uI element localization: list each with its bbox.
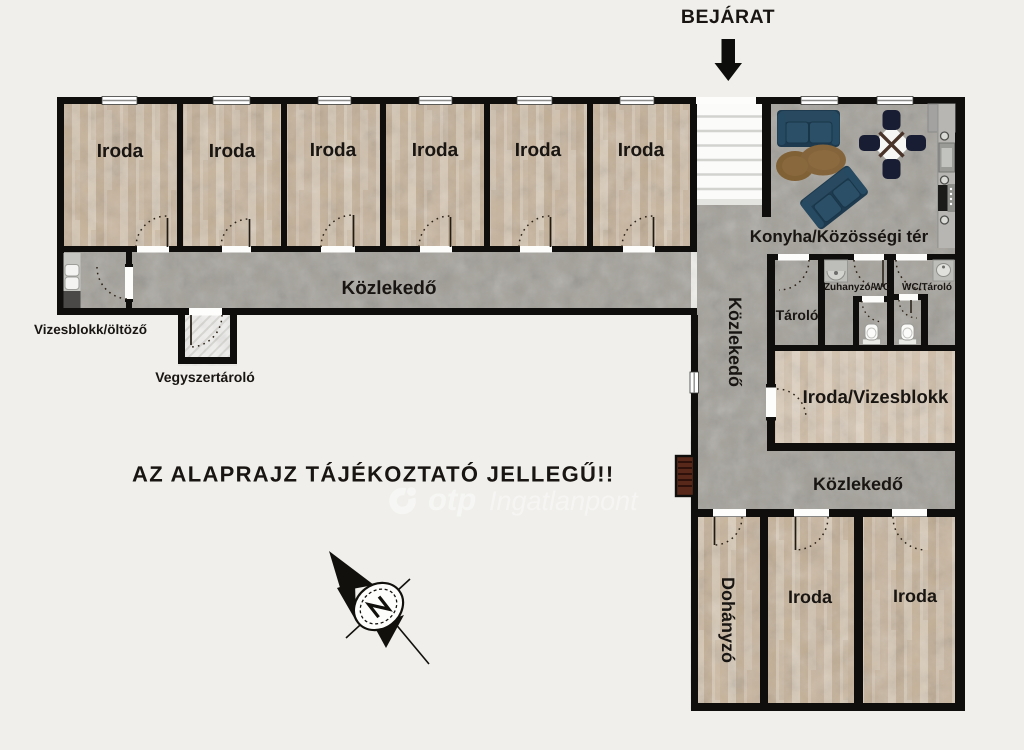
svg-text:WC/Tároló: WC/Tároló <box>902 282 952 293</box>
svg-text:Iroda: Iroda <box>618 140 665 161</box>
svg-text:Dohányzó: Dohányzó <box>718 577 738 663</box>
svg-text:Iroda/Vizesblokk: Iroda/Vizesblokk <box>803 386 949 407</box>
svg-text:Konyha/Közösségi tér: Konyha/Közösségi tér <box>750 227 929 246</box>
svg-text:Ingatlanpont: Ingatlanpont <box>489 486 639 516</box>
svg-text:Közlekedő: Közlekedő <box>341 278 436 299</box>
svg-text:Iroda: Iroda <box>412 140 459 161</box>
svg-text:Iroda: Iroda <box>893 586 938 606</box>
svg-text:Iroda: Iroda <box>788 587 833 607</box>
svg-text:Tároló: Tároló <box>776 307 819 323</box>
svg-text:Vegyszertároló: Vegyszertároló <box>155 369 255 385</box>
svg-text:Iroda: Iroda <box>310 140 357 161</box>
svg-text:Közlekedő: Közlekedő <box>725 297 745 387</box>
svg-text:Zuhanyzó/WC: Zuhanyzó/WC <box>824 282 890 293</box>
svg-text:AZ ALAPRAJZ TÁJÉKOZTATÓ JELLEG: AZ ALAPRAJZ TÁJÉKOZTATÓ JELLEGŰ!! <box>132 462 614 487</box>
svg-text:Iroda: Iroda <box>515 140 562 161</box>
svg-text:otp: otp <box>428 482 476 517</box>
svg-text:Közlekedő: Közlekedő <box>813 474 903 494</box>
svg-text:BEJÁRAT: BEJÁRAT <box>681 5 775 28</box>
svg-text:Iroda: Iroda <box>97 141 144 162</box>
svg-text:Iroda: Iroda <box>209 141 256 162</box>
svg-text:Vizesblokk/öltöző: Vizesblokk/öltöző <box>34 322 147 337</box>
